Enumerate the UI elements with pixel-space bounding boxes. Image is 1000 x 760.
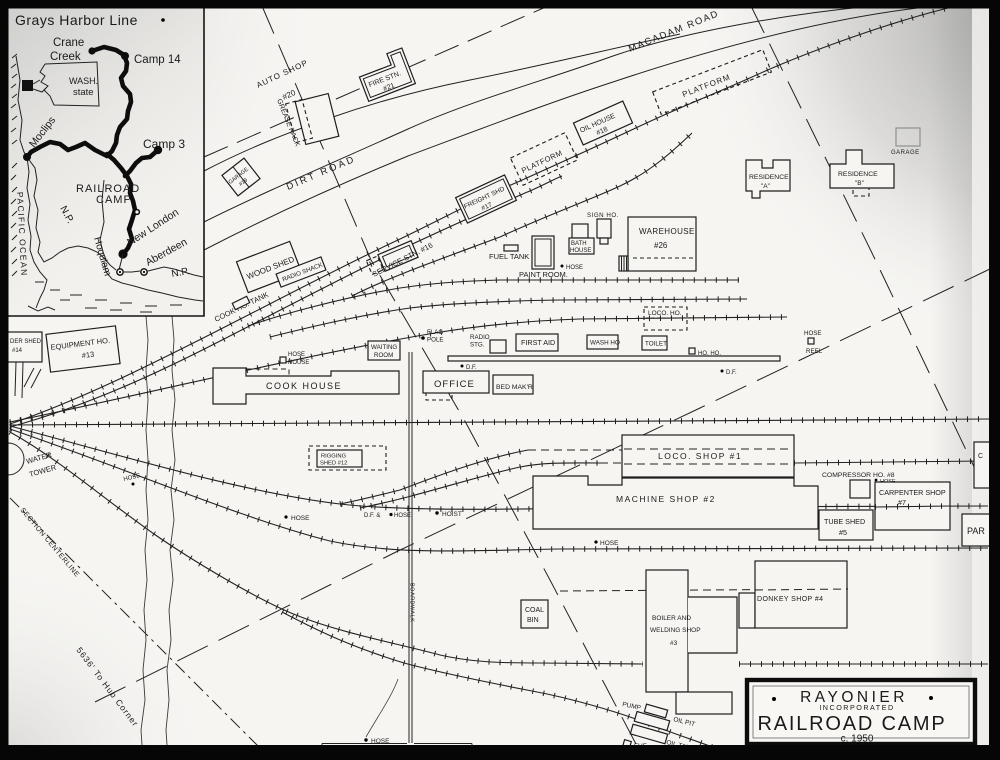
svg-text:WAREHOUSE: WAREHOUSE [639, 227, 695, 236]
svg-text:HOSE: HOSE [371, 738, 390, 745]
svg-text:D.F.: D.F. [726, 370, 737, 376]
svg-text:POLE: POLE [427, 337, 444, 344]
svg-text:C: C [978, 453, 983, 460]
svg-text:HOSE: HOSE [566, 265, 583, 271]
svg-text:WASH.: WASH. [69, 76, 98, 86]
svg-text:COAL: COAL [525, 607, 544, 614]
svg-text:Creek: Creek [50, 51, 81, 63]
svg-text:FLAG: FLAG [427, 329, 443, 336]
svg-text:Camp 3: Camp 3 [143, 137, 185, 151]
svg-text:LOCO. SHOP #1: LOCO. SHOP #1 [658, 451, 742, 461]
svg-text:SHED #12: SHED #12 [320, 461, 347, 467]
svg-text:ROOM: ROOM [374, 352, 393, 359]
svg-text:OFFICE: OFFICE [434, 379, 475, 390]
svg-text:Camp 14: Camp 14 [134, 54, 181, 66]
svg-text:#3: #3 [670, 640, 678, 647]
svg-text:COMPRESSOR HO. #8: COMPRESSOR HO. #8 [822, 472, 895, 479]
svg-text:#26: #26 [654, 241, 668, 250]
svg-text:PAINT ROOM.: PAINT ROOM. [519, 270, 568, 279]
svg-text:#5: #5 [839, 528, 847, 537]
svg-text:BIN: BIN [527, 617, 539, 624]
svg-text:DER SHED: DER SHED [10, 339, 42, 345]
svg-text:TUBE SHED: TUBE SHED [824, 517, 865, 526]
svg-text:REEL: REEL [806, 348, 823, 355]
svg-text:Grays Harbor Line: Grays Harbor Line [15, 12, 138, 28]
svg-text:BOARDWALK: BOARDWALK [409, 583, 415, 622]
svg-text:FIRST AID: FIRST AID [521, 338, 555, 347]
svg-text:LOCO. HO.: LOCO. HO. [648, 310, 682, 317]
svg-text:DONKEY SHOP #4: DONKEY SHOP #4 [757, 596, 823, 603]
svg-text:HOSE: HOSE [804, 330, 822, 337]
svg-text:BOILER AND: BOILER AND [652, 615, 691, 622]
svg-text:STG.: STG. [470, 342, 485, 349]
svg-text:state: state [73, 87, 94, 98]
svg-text:#7: #7 [898, 498, 906, 507]
svg-text:COOK HOUSE: COOK HOUSE [266, 381, 342, 391]
svg-text:RESIDENCE: RESIDENCE [749, 174, 789, 181]
svg-text:D.F. &: D.F. & [364, 513, 380, 519]
svg-text:TOILET: TOILET [645, 341, 667, 348]
svg-text:HOSE: HOSE [291, 515, 310, 522]
svg-text:Crane: Crane [53, 37, 84, 49]
svg-text:BATH: BATH [571, 241, 587, 247]
svg-text:PAR: PAR [967, 526, 985, 536]
svg-text:D.F.: D.F. [466, 365, 477, 371]
svg-text:c. 1950: c. 1950 [841, 734, 874, 745]
svg-text:MACHINE SHOP #2: MACHINE SHOP #2 [616, 494, 716, 504]
svg-text:RIGGING: RIGGING [321, 454, 347, 460]
svg-text:HOIST: HOIST [442, 511, 462, 518]
svg-text:HOUSE: HOUSE [570, 248, 591, 254]
svg-text:HOSE: HOSE [394, 513, 411, 519]
svg-text:RESIDENCE: RESIDENCE [838, 171, 878, 178]
svg-text:CAMP: CAMP [96, 194, 132, 206]
svg-text:INCORPORATED: INCORPORATED [819, 703, 894, 712]
svg-text:SIGN HO.: SIGN HO. [587, 212, 619, 219]
svg-text:"A": "A" [761, 183, 771, 190]
svg-text:CARPENTER SHOP: CARPENTER SHOP [879, 488, 946, 497]
svg-text:FUEL TANK: FUEL TANK [489, 252, 529, 261]
svg-text:HOSE: HOSE [600, 540, 619, 547]
svg-text:RADIO: RADIO [470, 334, 490, 341]
svg-text:WAITING: WAITING [371, 344, 397, 351]
svg-text:GARAGE: GARAGE [891, 150, 920, 156]
svg-text:HOSE: HOSE [288, 352, 305, 358]
svg-text:WASH HO: WASH HO [590, 340, 620, 347]
svg-text:WELDING SHOP: WELDING SHOP [650, 627, 701, 634]
svg-text:BED MAK'R: BED MAK'R [496, 384, 533, 391]
svg-text:#14: #14 [12, 348, 23, 354]
svg-text:HOUSE: HOUSE [288, 360, 309, 366]
svg-text:"B": "B" [855, 180, 865, 187]
svg-text:RAILROAD CAMP: RAILROAD CAMP [758, 713, 947, 735]
svg-text:#13: #13 [81, 350, 95, 360]
